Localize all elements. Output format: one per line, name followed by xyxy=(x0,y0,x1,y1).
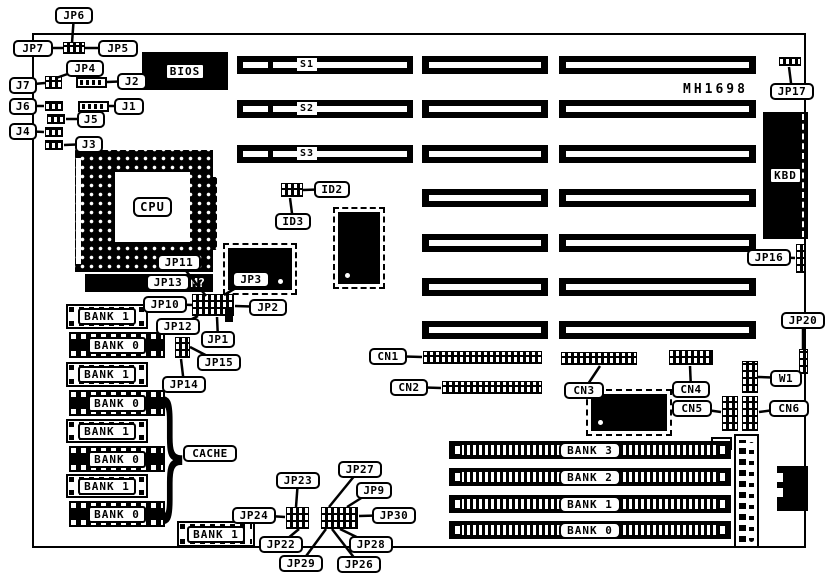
callout-cn3: CN3 xyxy=(564,382,604,399)
callout-cn1: CN1 xyxy=(369,348,407,365)
callout-jp20: JP20 xyxy=(781,312,825,329)
callout-cn2: CN2 xyxy=(390,379,428,396)
callout-label: J4 xyxy=(16,125,30,138)
callout-cache: CACHE xyxy=(183,445,237,462)
callout-jp4: JP4 xyxy=(66,60,104,77)
callout-label: JP3 xyxy=(240,273,261,286)
callout-label: JP14 xyxy=(170,378,199,391)
callout-j3: J3 xyxy=(75,136,103,153)
callout-jp14: JP14 xyxy=(162,376,206,393)
callout-label: J2 xyxy=(125,75,139,88)
callout-label: JP27 xyxy=(346,463,375,476)
callout-jp16: JP16 xyxy=(747,249,791,266)
callout-label: JP13 xyxy=(154,276,183,289)
motherboard-jumper-diagram: CPU M? BIOS KBD MH1698 } S1S2S3BANK 1BAN… xyxy=(0,0,830,581)
callout-jp22: JP22 xyxy=(259,536,303,553)
callout-jp9: JP9 xyxy=(356,482,392,499)
callout-label: JP23 xyxy=(284,474,313,487)
callout-cn6: CN6 xyxy=(769,400,809,417)
callout-jp7: JP7 xyxy=(13,40,53,57)
callout-label: JP11 xyxy=(165,256,194,269)
callout-label: CN5 xyxy=(681,402,702,415)
callout-jp17: JP17 xyxy=(770,83,814,100)
callout-label: J3 xyxy=(82,138,96,151)
callout-jp30: JP30 xyxy=(372,507,416,524)
callout-label: CACHE xyxy=(192,447,228,460)
callout-label: J1 xyxy=(122,100,136,113)
callout-label: JP20 xyxy=(789,314,818,327)
callout-label: JP2 xyxy=(257,301,278,314)
callout-cn5: CN5 xyxy=(672,400,712,417)
callout-label: W1 xyxy=(779,372,793,385)
callout-jp5: JP5 xyxy=(98,40,138,57)
callout-label: JP15 xyxy=(205,356,234,369)
callout-label: JP30 xyxy=(380,509,409,522)
callout-label: ID2 xyxy=(321,183,342,196)
callout-jp15: JP15 xyxy=(197,354,241,371)
callout-label: JP16 xyxy=(755,251,784,264)
callout-label: JP29 xyxy=(287,557,316,570)
callout-label: JP12 xyxy=(164,320,193,333)
callout-label: JP7 xyxy=(22,42,43,55)
callout-j4: J4 xyxy=(9,123,37,140)
callout-jp24: JP24 xyxy=(232,507,276,524)
callout-label: CN3 xyxy=(573,384,594,397)
callout-id3: ID3 xyxy=(275,213,311,230)
callout-label: JP26 xyxy=(345,558,374,571)
callout-label: JP9 xyxy=(363,484,384,497)
callout-jp12: JP12 xyxy=(156,318,200,335)
callout-label: JP24 xyxy=(240,509,269,522)
callout-id2: ID2 xyxy=(314,181,350,198)
callout-jp27: JP27 xyxy=(338,461,382,478)
callout-jp13: JP13 xyxy=(146,274,190,291)
callout-jp10: JP10 xyxy=(143,296,187,313)
callout-label: JP5 xyxy=(107,42,128,55)
callout-j5: J5 xyxy=(77,111,105,128)
callout-label: J6 xyxy=(16,100,30,113)
callout-jp28: JP28 xyxy=(349,536,393,553)
callout-w1: W1 xyxy=(770,370,802,387)
callout-j1: J1 xyxy=(114,98,144,115)
callout-label: ID3 xyxy=(282,215,303,228)
callout-label: CN4 xyxy=(680,383,701,396)
callout-jp3: JP3 xyxy=(232,271,270,288)
callout-label: J5 xyxy=(84,113,98,126)
callout-j2: J2 xyxy=(117,73,147,90)
callout-jp11: JP11 xyxy=(157,254,201,271)
callout-label: CN1 xyxy=(377,350,398,363)
callout-label: JP1 xyxy=(207,333,228,346)
callout-jp26: JP26 xyxy=(337,556,381,573)
callout-label: CN2 xyxy=(398,381,419,394)
callout-jp2: JP2 xyxy=(249,299,287,316)
callout-label: JP4 xyxy=(74,62,95,75)
callout-jp6: JP6 xyxy=(55,7,93,24)
callout-cn4: CN4 xyxy=(672,381,710,398)
callout-label: JP10 xyxy=(151,298,180,311)
callout-label: JP17 xyxy=(778,85,807,98)
callout-jp23: JP23 xyxy=(276,472,320,489)
callout-j6: J6 xyxy=(9,98,37,115)
callout-label: J7 xyxy=(16,79,30,92)
callout-label: JP28 xyxy=(357,538,386,551)
callout-jp1: JP1 xyxy=(201,331,235,348)
callout-label: CN6 xyxy=(778,402,799,415)
callout-jp29: JP29 xyxy=(279,555,323,572)
callout-label: JP6 xyxy=(63,9,84,22)
callout-j7: J7 xyxy=(9,77,37,94)
callout-label: JP22 xyxy=(267,538,296,551)
